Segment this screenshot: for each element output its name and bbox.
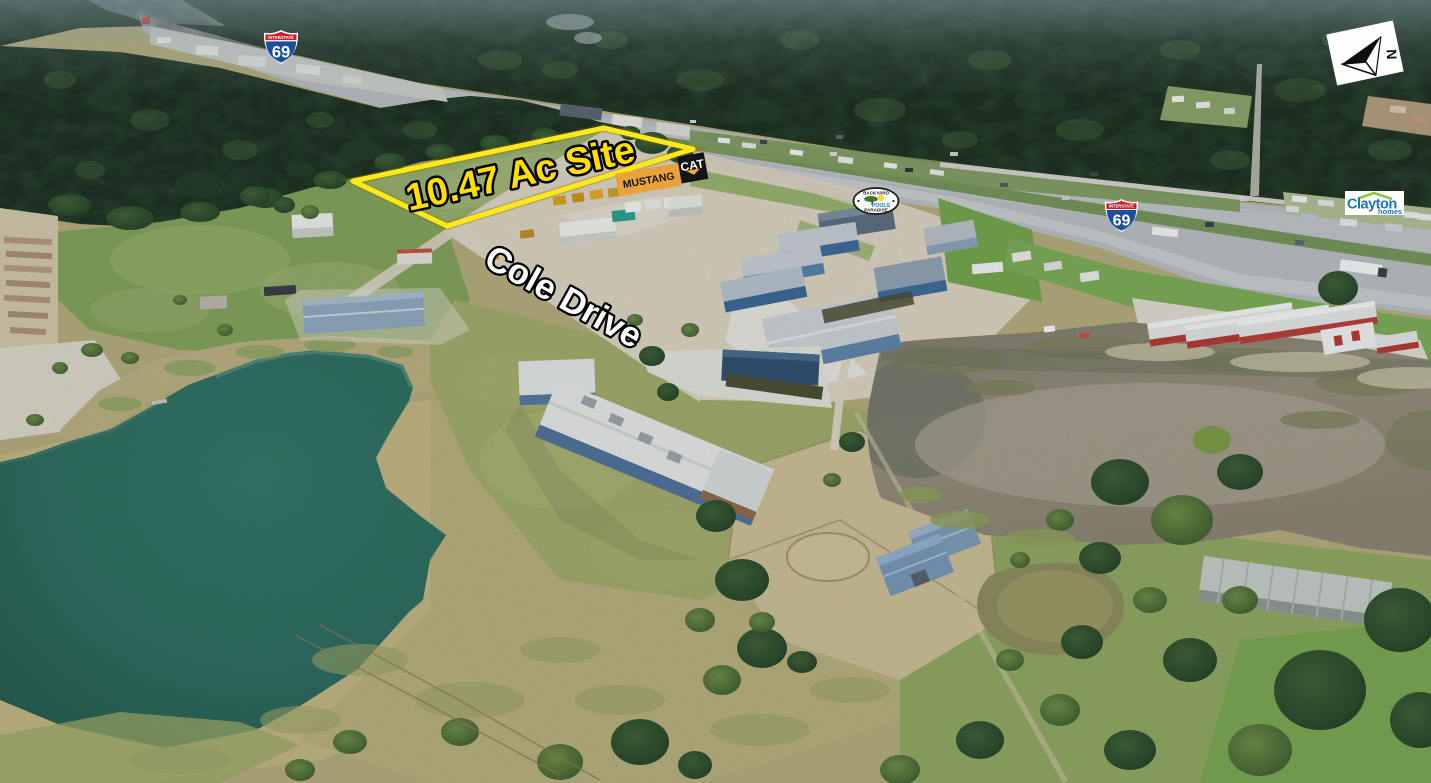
svg-text:INTERSTATE: INTERSTATE xyxy=(1109,204,1134,209)
svg-text:POOLS: POOLS xyxy=(872,203,891,209)
svg-text:BACKYARD: BACKYARD xyxy=(863,191,890,196)
svg-text:INTERSTATE: INTERSTATE xyxy=(268,35,294,40)
svg-text:N: N xyxy=(1384,49,1400,60)
svg-text:69: 69 xyxy=(272,44,290,62)
svg-text:homes: homes xyxy=(1378,207,1402,216)
svg-text:69: 69 xyxy=(1113,213,1131,230)
